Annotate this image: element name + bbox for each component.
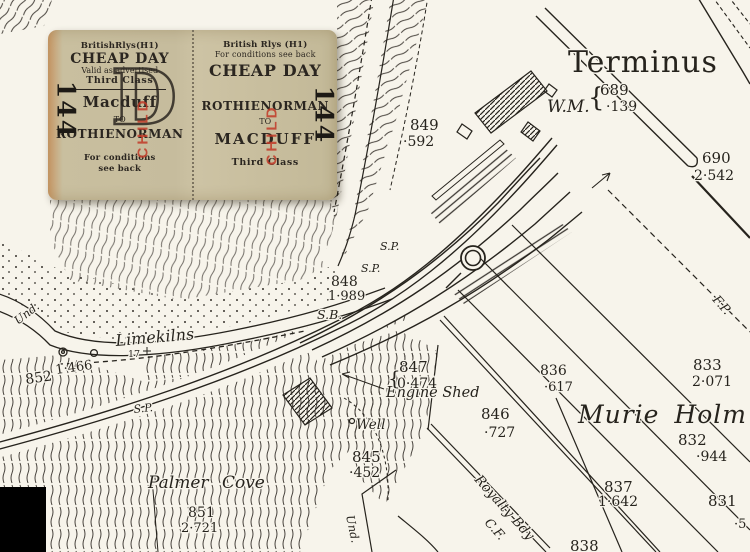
map-label-area-833: 2·071: [692, 374, 732, 390]
map-label-sp1: S.P.: [380, 240, 399, 253]
map-label-parcel-689: 689: [600, 81, 629, 99]
ticket-left-half: BritishRlys(H1) CHEAP DAY Valid as adver…: [48, 30, 192, 200]
ticket-right-half: British Rlys (H1) For conditions see bac…: [192, 30, 338, 200]
map-label-parcel-851: 851: [188, 505, 215, 521]
ticket-conditions-1: For conditions: [48, 154, 192, 163]
map-label-area-849: ·592: [403, 134, 434, 150]
black-corner-patch: [0, 487, 46, 552]
map-label-sb: S.B.: [317, 307, 342, 322]
map-label-parcel-846: 846: [481, 405, 510, 423]
ticket-serial-right: 144: [309, 86, 338, 144]
map-label-area-848: 1·989: [328, 289, 365, 304]
map-label-area-845: ·452: [349, 465, 380, 481]
ticket-issuer: BritishRlys(H1): [48, 42, 192, 51]
map-label-parcel-833: 833: [693, 356, 722, 374]
ticket-conditions-2: see back: [48, 165, 192, 174]
edmondson-ticket: BritishRlys(H1) CHEAP DAY Valid as adver…: [48, 30, 337, 200]
map-label-area-836: ·617: [544, 380, 573, 395]
map-label-area-690: 2·542: [694, 168, 734, 184]
map-label-sp3: S.P.: [133, 401, 154, 416]
ticket-issuer: British Rlys (H1): [194, 41, 338, 50]
map-label-sp2: S.P.: [361, 262, 380, 275]
map-label-area-689: ·139: [606, 99, 637, 115]
map-label-murie-holm: Murie Holm: [577, 400, 747, 429]
map-label-terminus: Terminus: [568, 45, 718, 80]
map-label-parcel-836: 836: [540, 363, 567, 379]
map-label-wm: W.M.: [547, 97, 590, 117]
map-label-parcel-838: 838: [570, 537, 599, 552]
ticket-conditions-top: For conditions see back: [194, 51, 338, 59]
ticket-type: CHEAP DAY: [194, 63, 338, 79]
map-label-area-851: 2·721: [181, 521, 218, 536]
map-label-area-831-partial: ·5: [734, 517, 746, 532]
map-label-area-837: 1·642: [598, 494, 638, 510]
scanned-map-with-ticket: Terminus { 689 ·139 W.M. 690 2·542 849 ·…: [0, 0, 750, 552]
map-label-parcel-849: 849: [410, 116, 439, 134]
map-label-parcel-832: 832: [678, 431, 707, 449]
map-label-area-847: 0·474: [397, 376, 437, 392]
map-label-palmer-cove: Palmer Cove: [147, 473, 265, 493]
map-label-parcel-847: 847: [399, 358, 428, 376]
map-label-parcel-845: 845: [352, 448, 381, 466]
ticket-serial-left: 144: [52, 81, 81, 139]
map-label-area-846: ·727: [484, 425, 515, 441]
map-label-17: 17: [128, 349, 140, 360]
child-stamp-right: CHILD: [263, 105, 280, 166]
child-stamp-left: CHILD: [135, 98, 152, 159]
map-label-parcel-831: 831: [708, 492, 737, 510]
map-label-well: Well: [356, 417, 385, 433]
map-label-parcel-848: 848: [331, 274, 358, 290]
turntable-icon: [461, 246, 485, 270]
map-label-area-832: ·944: [696, 449, 727, 465]
map-label-parcel-690: 690: [702, 149, 731, 167]
